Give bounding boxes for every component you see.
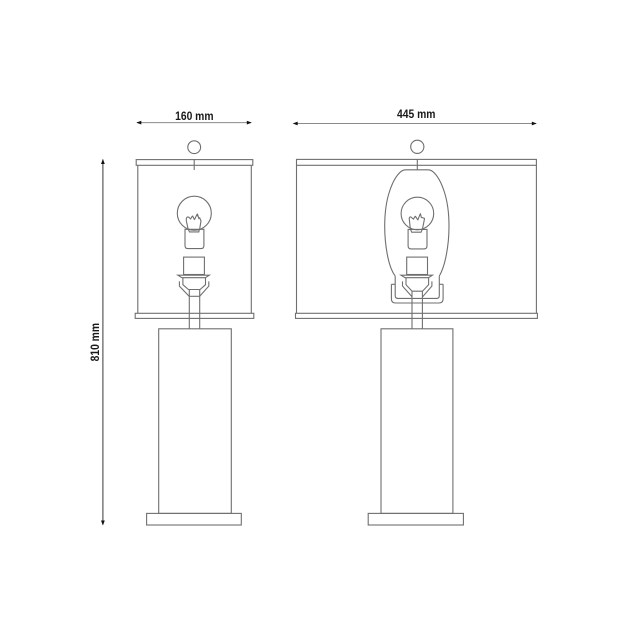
svg-text:160 mm: 160 mm: [175, 110, 213, 123]
svg-text:445 mm: 445 mm: [397, 109, 435, 122]
svg-text:810 mm: 810 mm: [89, 323, 102, 361]
